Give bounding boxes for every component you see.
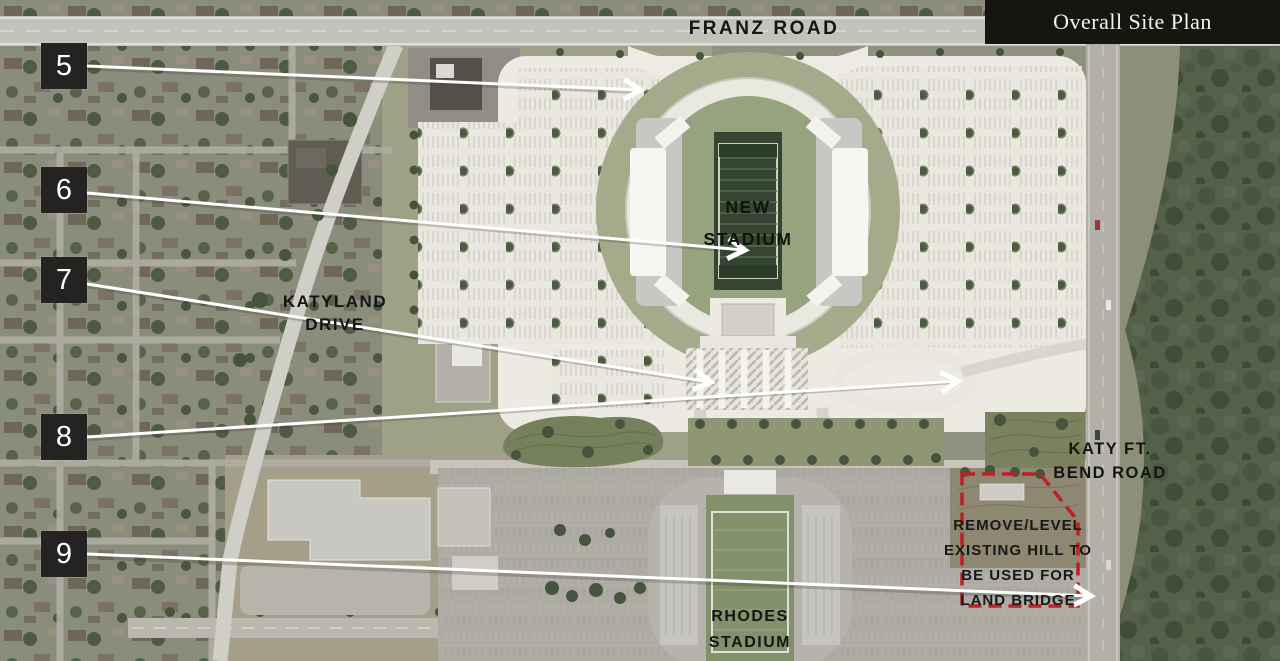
katyland-drive-label: KATYLAND DRIVE [271,290,399,336]
franz-road-label: FRANZ ROAD [648,16,880,41]
site-plan-page: FRANZ ROAD KATYLAND DRIVE NEW STADIUM KA… [0,0,1280,661]
katy-ft-bend-road-label: KATY FT. BEND ROAD [1048,437,1172,485]
callout-box-8: 8 [41,414,87,460]
callout-box-9: 9 [41,531,87,577]
rhodes-stadium-label: RHODES STADIUM [675,604,825,656]
callout-box-5: 5 [41,43,87,89]
remove-hill-note: REMOVE/LEVEL EXISTING HILL TO BE USED FO… [938,513,1098,613]
new-stadium-label: NEW STADIUM [693,191,803,255]
page-title: Overall Site Plan [985,0,1280,44]
callout-box-7: 7 [41,257,87,303]
callout-box-6: 6 [41,167,87,213]
